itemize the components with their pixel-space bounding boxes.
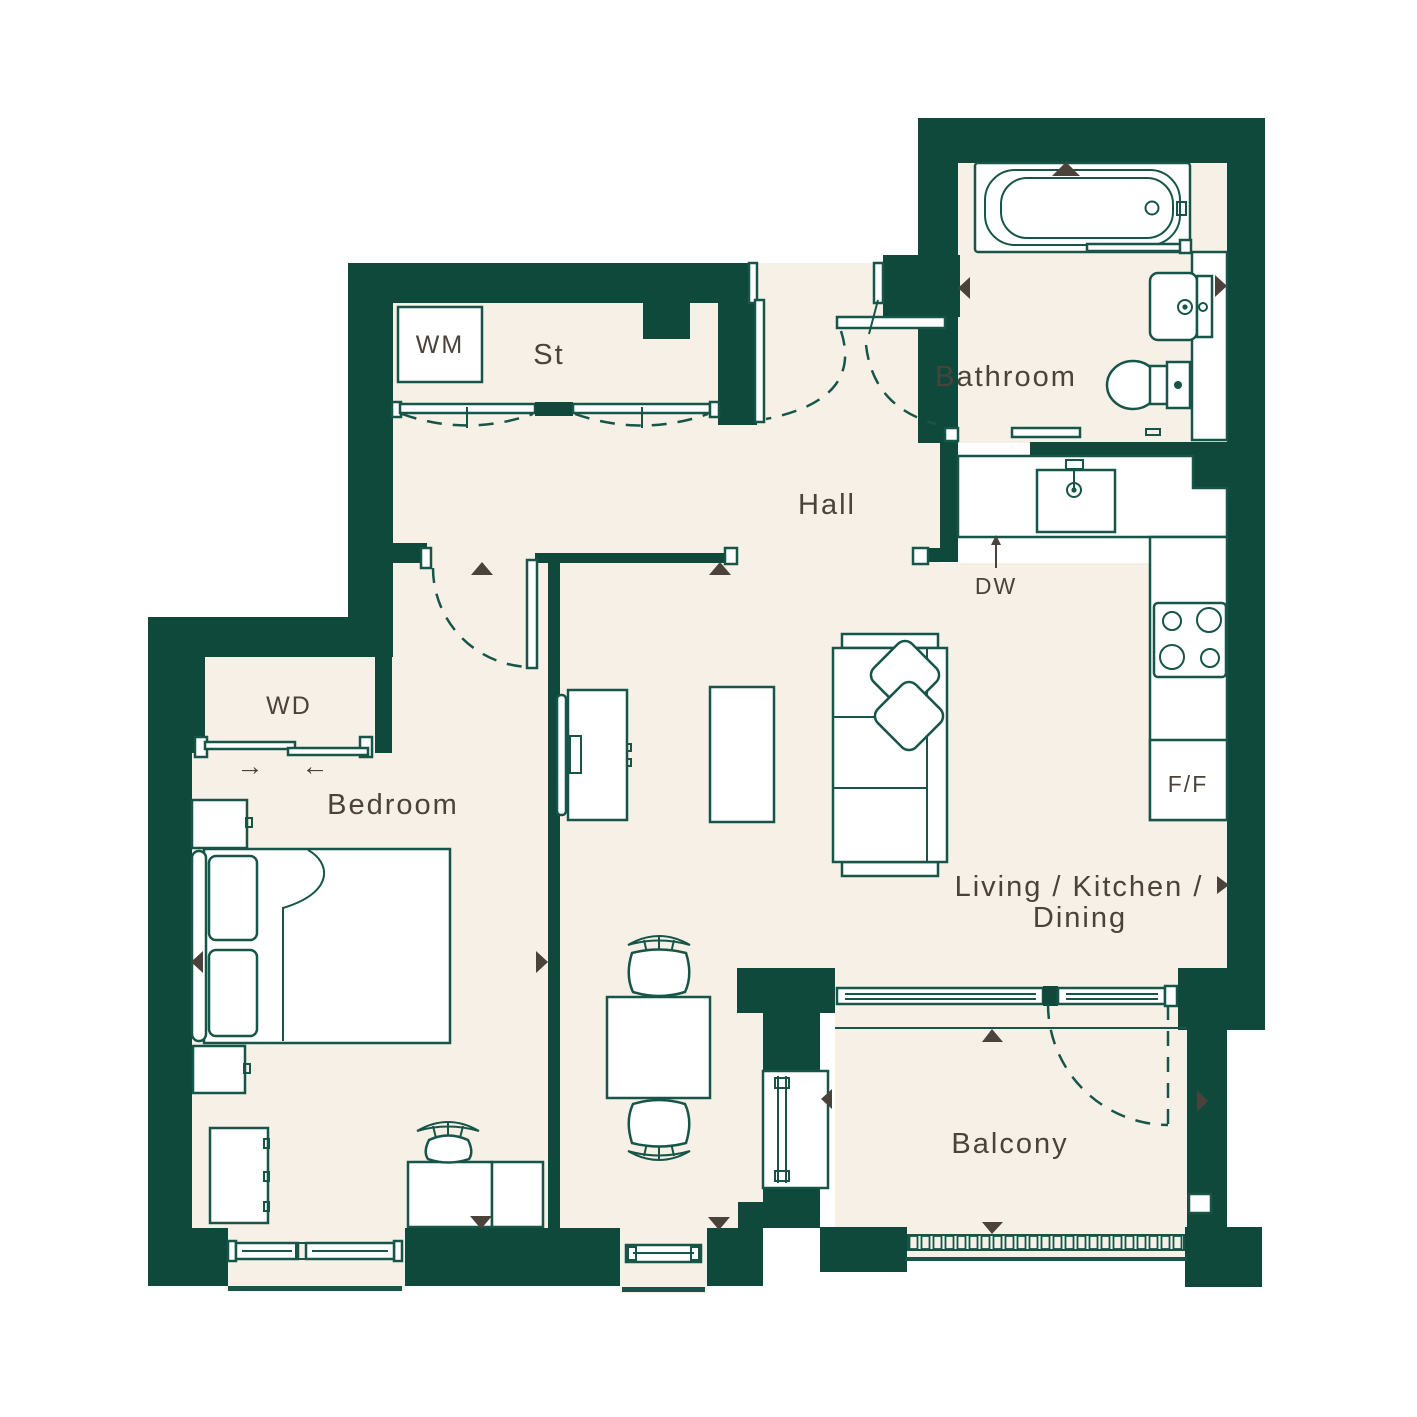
wall-segment bbox=[1193, 453, 1227, 488]
wall-segment bbox=[148, 657, 192, 1228]
bathroom-door-leaf bbox=[1012, 428, 1080, 437]
wall-end-jamb bbox=[913, 548, 928, 564]
wall-segment bbox=[737, 968, 835, 1013]
label-wardrobe: WD bbox=[266, 692, 312, 720]
label-balcony: Balcony bbox=[951, 1128, 1068, 1160]
wall-end-jamb bbox=[725, 548, 737, 564]
floorplan-drawing: WM St Bathroom Hall DW WD Bedroom Living… bbox=[0, 0, 1417, 1417]
floor-bedroom-entry bbox=[392, 563, 548, 673]
wall-segment bbox=[1178, 968, 1265, 1030]
dining-table bbox=[607, 997, 710, 1098]
wall-segment bbox=[348, 263, 757, 303]
balustrade-rail bbox=[908, 1235, 1184, 1250]
label-dining: Dining bbox=[1033, 902, 1127, 934]
wardrobe-sliding-door bbox=[205, 742, 295, 749]
bedside-table bbox=[193, 1046, 245, 1093]
wall-segment bbox=[918, 118, 1265, 163]
hall-door-leaf bbox=[837, 317, 945, 328]
sofa-arm bbox=[842, 862, 938, 876]
entry-door-jamb bbox=[749, 263, 757, 303]
wall-segment bbox=[405, 1228, 620, 1286]
label-storage: St bbox=[533, 339, 564, 371]
bed-headboard bbox=[192, 851, 206, 1041]
bedroom-door-leaf bbox=[527, 560, 537, 668]
bay-sill-line bbox=[228, 1286, 402, 1291]
pillow bbox=[209, 856, 257, 940]
label-hall: Hall bbox=[798, 489, 856, 521]
chair-seat bbox=[629, 1100, 690, 1147]
kitchen-sink bbox=[1037, 470, 1115, 532]
label-washing-machine: WM bbox=[416, 331, 464, 359]
entry-door-jamb bbox=[874, 263, 883, 303]
floorplan-page: WM St Bathroom Hall DW WD Bedroom Living… bbox=[0, 0, 1417, 1417]
bedside-table bbox=[192, 800, 247, 848]
tv-unit bbox=[568, 690, 627, 820]
wall-segment bbox=[918, 163, 958, 443]
storage-door-post bbox=[535, 402, 573, 416]
bathroom-door-jamb bbox=[945, 428, 958, 441]
wall-segment bbox=[148, 617, 392, 657]
bay-sill-line bbox=[622, 1287, 705, 1292]
basin-tap-dot bbox=[1182, 304, 1187, 309]
tv-screen bbox=[557, 695, 566, 815]
wall-segment bbox=[535, 553, 737, 563]
wall-segment bbox=[940, 442, 958, 458]
wardrobe-slide-arrow-left: ← bbox=[302, 751, 329, 781]
wall-segment bbox=[940, 458, 958, 562]
shower-screen bbox=[1087, 244, 1183, 251]
floor-balcony bbox=[835, 1003, 1187, 1235]
wall-segment bbox=[1185, 1227, 1262, 1287]
wall-segment bbox=[820, 1227, 907, 1272]
label-living-kitchen: Living / Kitchen / bbox=[955, 871, 1204, 903]
pillow bbox=[209, 950, 257, 1036]
wall-segment bbox=[643, 303, 690, 339]
toilet-flush-dot bbox=[1174, 381, 1182, 389]
balcony-drain-box bbox=[1189, 1194, 1211, 1213]
balcony-glazing bbox=[1058, 988, 1165, 1004]
wall-segment bbox=[763, 1013, 820, 1071]
label-bathroom: Bathroom bbox=[935, 361, 1077, 393]
glazing-mullion bbox=[1043, 986, 1058, 1006]
shower-screen-bracket bbox=[1180, 240, 1191, 253]
entry-door-leaf-open bbox=[755, 300, 764, 422]
sofa bbox=[833, 634, 947, 876]
wall-segment bbox=[707, 1228, 763, 1286]
bedroom-door-jamb bbox=[421, 548, 431, 568]
chair-seat bbox=[629, 950, 690, 997]
glazing-jamb bbox=[1165, 986, 1177, 1006]
label-dishwasher: DW bbox=[975, 573, 1017, 599]
wall-segment bbox=[763, 1188, 820, 1228]
chest-of-drawers bbox=[210, 1128, 268, 1223]
wall-segment bbox=[148, 1228, 228, 1286]
label-bedroom: Bedroom bbox=[327, 789, 459, 821]
pillar-window bbox=[763, 1071, 828, 1188]
balcony-glazing bbox=[837, 988, 1043, 1004]
coffee-table bbox=[710, 687, 774, 822]
wall-segment bbox=[1227, 118, 1265, 995]
basin-bowl bbox=[1150, 273, 1197, 340]
balustrade bbox=[905, 1235, 1187, 1261]
wall-segment bbox=[375, 657, 392, 753]
side-window bbox=[763, 1071, 828, 1188]
wall-segment bbox=[348, 303, 393, 657]
chair-seat bbox=[426, 1136, 472, 1163]
storage-door-jamb bbox=[710, 402, 719, 417]
desk-return bbox=[492, 1162, 543, 1227]
label-fridge-freezer: F/F bbox=[1168, 771, 1209, 797]
wall-segment bbox=[718, 303, 757, 425]
wall-segment bbox=[738, 1202, 763, 1228]
sofa-arm bbox=[842, 634, 938, 648]
balustrade-base-line bbox=[905, 1257, 1187, 1261]
sink-tap-dot bbox=[1071, 487, 1076, 492]
wall-segment bbox=[928, 548, 958, 562]
wall-segment bbox=[548, 563, 560, 1228]
wardrobe-slide-arrow-right: → bbox=[237, 751, 264, 781]
